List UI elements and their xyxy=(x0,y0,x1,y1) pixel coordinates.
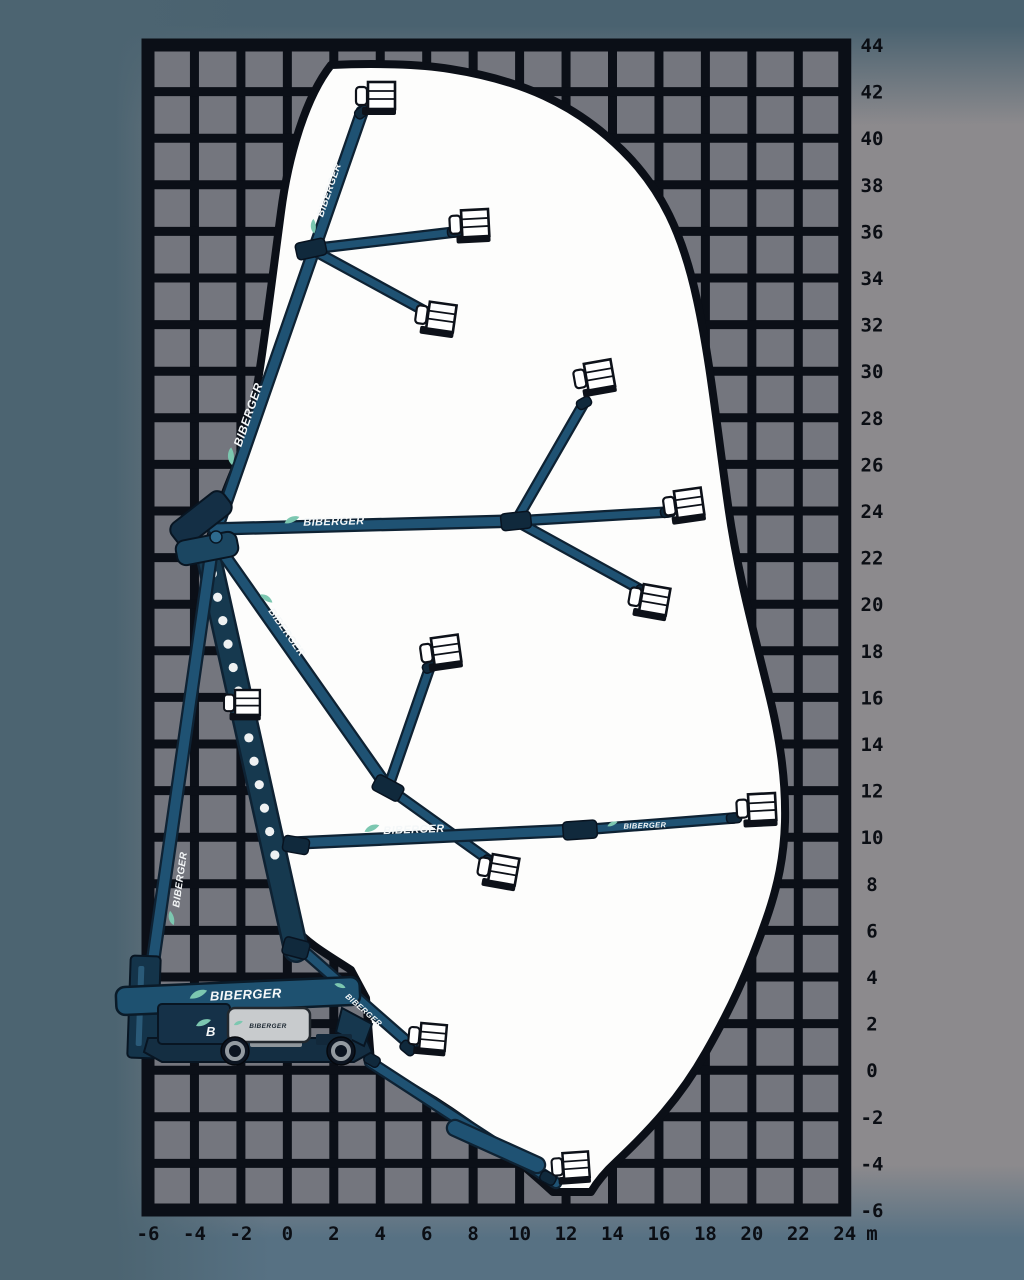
basket-control-box xyxy=(573,369,587,389)
svg-text:BIBERGER: BIBERGER xyxy=(210,985,283,1003)
y-axis-label: 8 xyxy=(866,874,877,896)
y-axis-label: 26 xyxy=(861,454,884,476)
svg-text:BIBERGER: BIBERGER xyxy=(303,515,365,529)
x-axis-label: 0 xyxy=(282,1223,293,1245)
x-axis-label: 2 xyxy=(328,1223,339,1245)
y-axis-label: 34 xyxy=(861,268,884,290)
riser-hole xyxy=(249,757,258,766)
y-axis-label: 40 xyxy=(861,128,884,150)
x-axis-label: 14 xyxy=(601,1223,624,1245)
y-axis-label: 20 xyxy=(861,594,884,616)
y-axis-label: 22 xyxy=(861,548,884,570)
y-axis-label: 18 xyxy=(861,641,884,663)
riser-hole xyxy=(213,593,222,602)
basket-control-box xyxy=(356,87,367,105)
y-axis-label: 42 xyxy=(861,82,884,104)
x-axis-label: -4 xyxy=(183,1223,206,1245)
basket-control-box xyxy=(736,799,748,818)
x-axis-label: 10 xyxy=(508,1223,531,1245)
y-axis-label: 2 xyxy=(866,1014,877,1036)
basket-control-box xyxy=(449,215,461,234)
basket-control-box xyxy=(408,1027,420,1045)
x-axis-label: 20 xyxy=(740,1223,763,1245)
platform-basket xyxy=(224,690,261,720)
x-axis-label: -2 xyxy=(229,1223,252,1245)
riser-hole xyxy=(260,804,269,813)
y-axis-label: 12 xyxy=(861,781,884,803)
x-axis-label: 4 xyxy=(375,1223,386,1245)
riser-hole xyxy=(218,616,227,625)
riser-hole xyxy=(255,780,264,789)
svg-text:BIBERGER: BIBERGER xyxy=(249,1023,287,1030)
riser-hole xyxy=(229,663,238,672)
x-axis-label: 18 xyxy=(694,1223,717,1245)
boom-joint xyxy=(562,820,597,840)
y-axis-label: -6 xyxy=(861,1200,884,1222)
basket-control-box xyxy=(420,643,433,662)
riser-hole xyxy=(270,850,279,859)
y-axis-label: 36 xyxy=(861,221,884,243)
y-axis-label: 38 xyxy=(861,175,884,197)
turret-logo: B xyxy=(206,1024,216,1039)
platform-basket xyxy=(356,82,396,115)
y-axis-label: 14 xyxy=(861,734,884,756)
basket-control-box xyxy=(415,305,428,324)
axis-unit-label: m xyxy=(866,1223,877,1245)
y-axis-label: 4 xyxy=(866,967,877,989)
x-axis-label: 16 xyxy=(648,1223,671,1245)
y-axis-label: 6 xyxy=(866,920,877,942)
x-axis-label: 8 xyxy=(467,1223,478,1245)
y-axis-label: 10 xyxy=(861,827,884,849)
basket-control-box xyxy=(551,1158,563,1176)
y-axis-label: 32 xyxy=(861,315,884,337)
y-axis-label: 24 xyxy=(861,501,884,523)
y-axis-label: -2 xyxy=(861,1107,884,1129)
basket-control-box xyxy=(224,695,234,712)
basket-control-box xyxy=(477,857,491,877)
x-axis-label: 6 xyxy=(421,1223,432,1245)
y-axis-label: 16 xyxy=(861,687,884,709)
platform-basket xyxy=(413,300,457,338)
y-axis-label: 44 xyxy=(861,35,884,57)
x-axis-label: 12 xyxy=(555,1223,578,1245)
boom-joint xyxy=(500,511,532,531)
riser-hole xyxy=(244,733,253,742)
svg-text:BIBERGER: BIBERGER xyxy=(623,820,666,830)
boom-joint xyxy=(282,835,310,855)
y-axis-label: 28 xyxy=(861,408,884,430)
basket-control-box xyxy=(663,496,676,515)
basket-control-box xyxy=(628,587,642,607)
platform-basket xyxy=(407,1022,448,1057)
x-axis-label: 24 xyxy=(833,1223,856,1245)
svg-text:BIBERGER: BIBERGER xyxy=(383,823,445,837)
riser-hole xyxy=(265,827,274,836)
y-axis-label: -4 xyxy=(861,1153,884,1175)
x-axis-label: 22 xyxy=(787,1223,810,1245)
reach-diagram: -6-4-20246810121416182022244442403836343… xyxy=(0,0,1024,1280)
riser-hole xyxy=(223,639,232,648)
y-axis-label: 0 xyxy=(866,1060,877,1082)
x-axis-label: -6 xyxy=(137,1223,160,1245)
y-axis-label: 30 xyxy=(861,361,884,383)
